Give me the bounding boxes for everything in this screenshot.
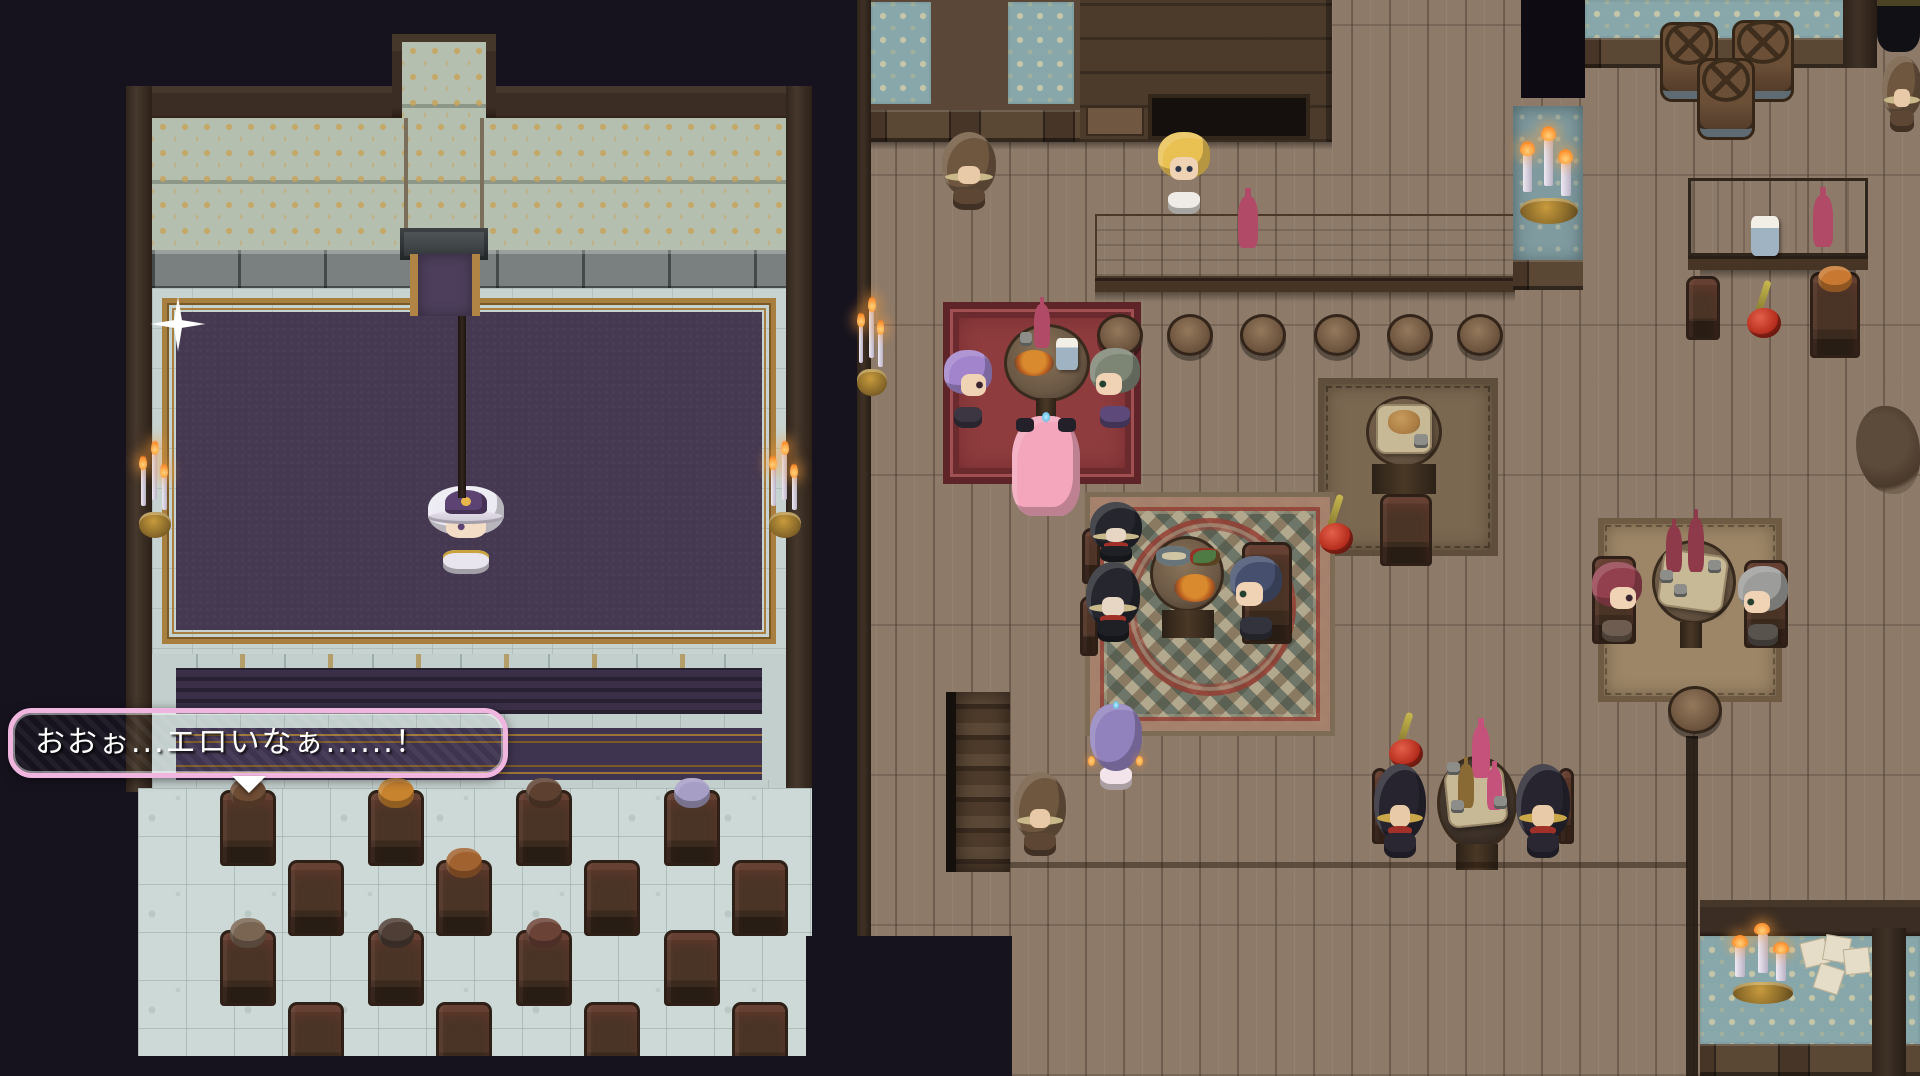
sbase-part xyxy=(769,512,800,538)
floor-seam xyxy=(1010,862,1688,868)
fish-plate xyxy=(1156,546,1192,566)
bottle-bottom-pink-1 xyxy=(1472,726,1490,778)
face-part xyxy=(1744,591,1770,613)
npc-bartender[interactable] xyxy=(1158,132,1210,214)
seated-audience-head[interactable] xyxy=(674,778,710,808)
stage-left-sconce xyxy=(138,444,172,538)
npc-dark-hood-1[interactable] xyxy=(1090,502,1142,562)
candle-part xyxy=(1523,154,1532,192)
candle-part xyxy=(1776,953,1786,981)
bow-part xyxy=(1016,418,1034,432)
stage-right-sconce xyxy=(768,444,802,538)
cup-bottom-1 xyxy=(1447,762,1460,775)
npc-gold-hood-right[interactable] xyxy=(1516,764,1570,858)
hair-part xyxy=(942,132,996,196)
body-part xyxy=(954,407,983,428)
npc-green-haired-noble[interactable] xyxy=(1090,348,1140,428)
candle-part xyxy=(162,476,167,510)
sbase-part xyxy=(1520,198,1577,224)
candle-part xyxy=(878,333,883,368)
stage-front-ledge xyxy=(152,654,786,668)
wine-bottle-counter xyxy=(1238,196,1258,248)
body-part xyxy=(443,550,489,574)
body-part xyxy=(1748,624,1778,646)
theater-wall-left xyxy=(126,86,152,792)
diamond-table-base xyxy=(1162,610,1214,638)
npc-witch-performer[interactable] xyxy=(428,486,504,574)
body-part xyxy=(1100,406,1130,428)
meat-plate xyxy=(1190,548,1220,566)
body-part xyxy=(1602,620,1632,642)
face-part xyxy=(1170,157,1197,180)
seated-patron-head[interactable] xyxy=(1818,266,1852,292)
bow-part xyxy=(1058,418,1076,432)
cup-bottom-3 xyxy=(1494,796,1507,809)
npc-blue-haired-patron[interactable] xyxy=(1230,556,1282,640)
flame-part xyxy=(781,440,789,455)
npc-purple-girl-below[interactable] xyxy=(1090,704,1142,788)
seated-audience-head[interactable] xyxy=(378,778,414,808)
face-part xyxy=(1236,582,1263,606)
bar-stool xyxy=(1240,314,1286,356)
tavern-left-wall xyxy=(857,0,871,940)
candle-part xyxy=(782,453,787,500)
bread-table-base xyxy=(1372,464,1436,494)
flame-part xyxy=(160,463,168,478)
candle-part xyxy=(869,310,874,358)
dialogue-pointer xyxy=(232,776,266,793)
body-part xyxy=(1890,111,1914,132)
seated-audience-head[interactable] xyxy=(526,918,562,948)
npc-red-haired-patron[interactable] xyxy=(1592,562,1642,642)
npc-pink-princess[interactable] xyxy=(1012,416,1080,516)
wallpaper-panel-1 xyxy=(871,2,931,104)
wallpaper-panel-2 xyxy=(1008,2,1074,104)
theater-wall-right xyxy=(786,86,812,792)
wine-bottle-long-table xyxy=(1813,195,1833,247)
bar-stool xyxy=(1387,314,1433,356)
stage-entrance-aisle xyxy=(410,254,480,316)
seated-audience-head[interactable] xyxy=(446,848,482,878)
barrel xyxy=(1697,58,1755,140)
body-part xyxy=(953,189,985,210)
face-part xyxy=(1894,89,1910,106)
candle-part xyxy=(859,325,864,363)
flame-part xyxy=(790,463,798,478)
face-part xyxy=(1106,528,1127,542)
dialogue-box: おおぉ...エロいなぁ......！ xyxy=(8,708,508,778)
tavern-wall-sconce xyxy=(856,300,888,396)
wine-bottle-red-table xyxy=(1034,304,1050,348)
cup-tan-table-3 xyxy=(1674,584,1687,597)
beer-mug-long-table xyxy=(1751,216,1779,256)
apple-stand xyxy=(1744,280,1786,338)
candle-part xyxy=(1735,946,1745,977)
game-viewport[interactable]: おおぉ...エロいなぁ......！ xyxy=(0,0,1920,1076)
soup-bowl-diamond-table xyxy=(1174,574,1216,602)
bottle-tan-table-1 xyxy=(1666,526,1682,572)
cup-bread-table xyxy=(1414,434,1428,448)
seated-audience-head[interactable] xyxy=(526,778,562,808)
audience-chair xyxy=(664,930,720,1006)
npc-hooded-monk-stairs[interactable] xyxy=(1014,772,1066,856)
flame-part xyxy=(769,455,777,470)
dialogue-text: おおぉ...エロいなぁ......！ xyxy=(35,725,427,760)
npc-gold-hood-left[interactable] xyxy=(1374,764,1426,858)
cup-tan-table-1 xyxy=(1660,570,1673,583)
flamedot-part xyxy=(1088,756,1095,766)
flame-part xyxy=(877,319,885,334)
bar-stool xyxy=(1457,314,1503,356)
audience-chair xyxy=(584,860,640,936)
tavern-chair xyxy=(1686,276,1720,340)
candle-part xyxy=(792,476,797,510)
hanging-cloak xyxy=(1877,0,1920,52)
audience-chair xyxy=(288,860,344,936)
bar-stool xyxy=(1167,314,1213,356)
flame-part xyxy=(1732,935,1748,947)
tan-table-leg xyxy=(1680,622,1702,648)
lounge-column xyxy=(1872,928,1906,1076)
body-part xyxy=(1024,833,1055,856)
bar-counter-shadow xyxy=(1095,292,1515,302)
face-part xyxy=(1532,805,1554,827)
body-part xyxy=(1168,192,1199,214)
bar-counter xyxy=(1095,214,1515,278)
candle-part xyxy=(771,468,776,506)
hair-part xyxy=(1882,56,1920,118)
hair-part xyxy=(1090,704,1142,771)
candle-part xyxy=(1544,139,1553,186)
sbase-part xyxy=(139,512,170,538)
seated-audience-head[interactable] xyxy=(378,918,414,948)
flame-part xyxy=(868,296,876,311)
btop-part xyxy=(1702,58,1751,102)
audience-chair xyxy=(732,860,788,936)
face-part xyxy=(1102,597,1124,615)
bottle-tan-table-2 xyxy=(1688,518,1704,572)
flame-part xyxy=(1541,126,1556,141)
flame-part xyxy=(1520,141,1535,156)
body-part xyxy=(1240,617,1271,640)
candle-part xyxy=(1758,934,1768,973)
npc-purple-twintail-girl[interactable] xyxy=(944,350,992,428)
wooden-stairs xyxy=(946,692,1010,872)
beer-mug-red-table xyxy=(1056,338,1078,370)
stage-purple-carpet xyxy=(176,312,762,630)
dark-doorway xyxy=(1521,0,1585,98)
bar-stool xyxy=(1668,686,1722,734)
void-bottom-left-tavern xyxy=(806,936,1012,1076)
face-part xyxy=(1096,373,1122,395)
teal-wall-base xyxy=(1513,260,1583,290)
face-part xyxy=(1390,805,1411,827)
candle-part xyxy=(152,453,157,500)
npc-hooded-monk-top[interactable] xyxy=(942,132,996,210)
gem-part xyxy=(1042,412,1050,422)
sbase-part xyxy=(857,369,886,396)
hanging-rope xyxy=(458,316,466,498)
flame-part xyxy=(1773,942,1789,954)
counter-candelabra xyxy=(1518,130,1580,224)
body-part xyxy=(1100,546,1131,562)
hair-part xyxy=(1014,772,1066,841)
gem-part xyxy=(1113,701,1119,709)
flame-part xyxy=(1558,149,1573,164)
room-divider-edge xyxy=(1686,736,1698,1076)
void-theater-bottom xyxy=(126,1056,812,1076)
cup-red-table xyxy=(1020,332,1032,346)
fruit-part xyxy=(1747,308,1781,338)
bread-loaf xyxy=(1388,410,1420,434)
face-part xyxy=(1610,587,1636,609)
lounge-candelabra xyxy=(1730,926,1796,1004)
npc-hooded-monk-edge[interactable] xyxy=(1882,56,1920,132)
body-part xyxy=(1384,833,1415,858)
soup-bowl-red-table xyxy=(1014,350,1054,376)
cup-bottom-2 xyxy=(1451,800,1464,813)
flame-part xyxy=(139,455,147,470)
npc-dark-hood-2[interactable] xyxy=(1086,562,1140,642)
bar-stool xyxy=(1314,314,1360,356)
apple-stand xyxy=(1386,712,1428,768)
stage-side-strip-right xyxy=(762,654,786,780)
wallpaper-top-right xyxy=(1585,0,1875,38)
candle-part xyxy=(141,468,146,506)
sbase-part xyxy=(1733,982,1794,1004)
face-part xyxy=(961,374,986,396)
wood-column-top-right xyxy=(1843,0,1877,68)
apple-stand xyxy=(1316,494,1358,554)
fruit-part xyxy=(1319,523,1353,554)
tavern-chair xyxy=(1380,494,1432,566)
pinned-papers xyxy=(1800,936,1876,1002)
body-part xyxy=(1097,620,1129,642)
theater-door-column xyxy=(404,118,484,232)
face-part xyxy=(958,166,980,184)
candle-part xyxy=(1561,162,1570,196)
bar-counter-front xyxy=(1095,278,1515,292)
theater-door-tower-panel xyxy=(402,42,486,120)
cup-tan-table-2 xyxy=(1708,560,1721,573)
npc-gray-haired-patron[interactable] xyxy=(1738,566,1788,646)
wall-bench xyxy=(1086,106,1144,136)
flame-part xyxy=(1754,923,1770,935)
body-part xyxy=(1527,833,1559,858)
flamedot-part xyxy=(1136,756,1143,766)
face-part xyxy=(1030,809,1051,828)
flame-part xyxy=(857,312,865,327)
seated-audience-head[interactable] xyxy=(230,918,266,948)
flame-part xyxy=(151,440,159,455)
